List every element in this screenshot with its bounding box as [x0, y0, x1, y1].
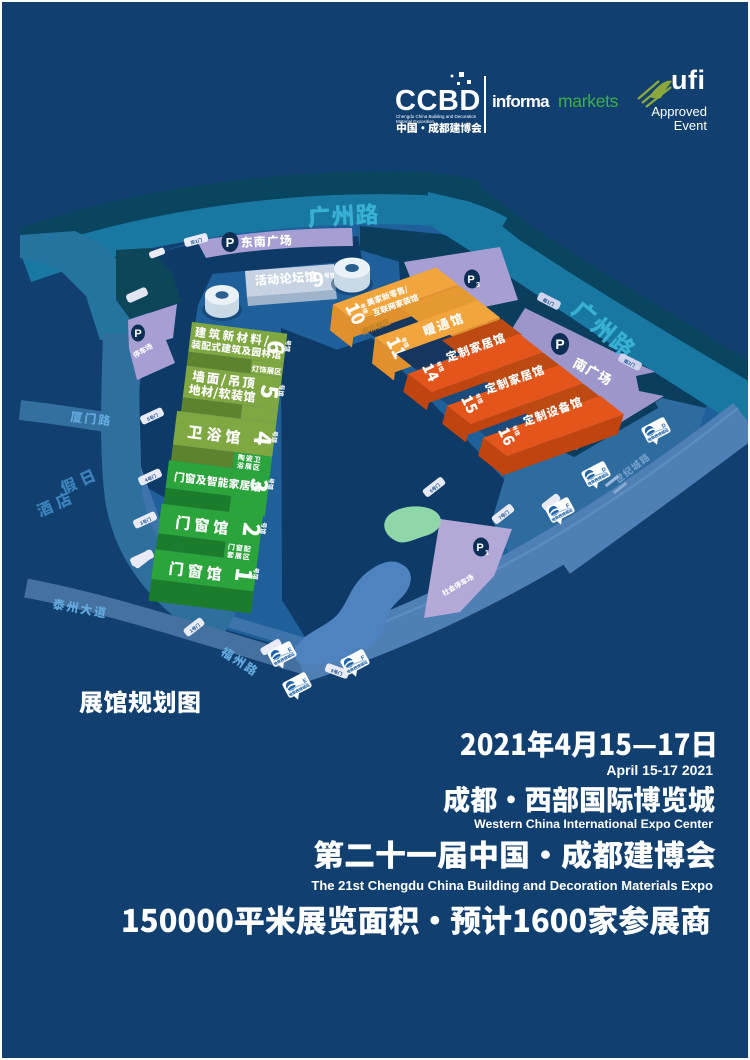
svg-text:P: P [134, 328, 141, 340]
svg-text:April 15-17 2021: April 15-17 2021 [606, 762, 713, 778]
svg-text:markets: markets [558, 91, 619, 111]
svg-text:Approved: Approved [651, 104, 707, 119]
svg-text:P: P [555, 336, 564, 352]
svg-text:informa: informa [492, 92, 550, 111]
svg-text:P: P [467, 274, 474, 286]
svg-text:Western China International Ex: Western China International Expo Center [474, 817, 713, 831]
svg-text:The 21st Chengdu China Buildin: The 21st Chengdu China Building and Deco… [311, 878, 713, 893]
svg-text:P: P [226, 235, 235, 250]
svg-text:P: P [476, 542, 483, 554]
svg-text:ufi: ufi [671, 65, 706, 95]
svg-text:Event: Event [674, 118, 708, 133]
svg-text:3: 3 [476, 282, 480, 289]
svg-text:CCBD: CCBD [395, 85, 481, 117]
svg-text:1: 1 [485, 550, 489, 557]
